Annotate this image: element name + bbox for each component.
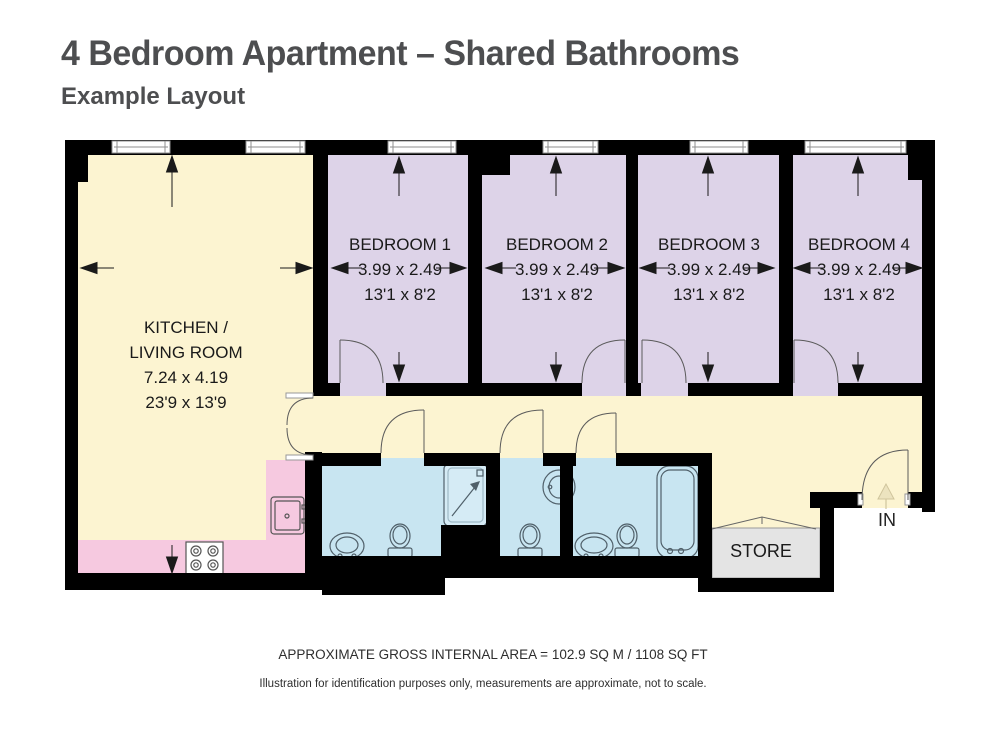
disclaimer-note: Illustration for identification purposes… xyxy=(259,678,706,690)
room-imperial-dims: 13'1 x 8'2 xyxy=(349,282,451,307)
room-metric-dims: 3.99 x 2.49 xyxy=(658,257,760,282)
gross-internal-area-note: APPROXIMATE GROSS INTERNAL AREA = 102.9 … xyxy=(278,647,707,662)
bedroom-4-label: BEDROOM 4 3.99 x 2.49 13'1 x 8'2 xyxy=(808,232,910,307)
room-name: KITCHEN / xyxy=(129,315,242,340)
window xyxy=(388,141,456,153)
room-name: BEDROOM 2 xyxy=(506,232,608,257)
room-metric-dims: 7.24 x 4.19 xyxy=(129,365,242,390)
room-imperial-dims: 13'1 x 8'2 xyxy=(808,282,910,307)
room-name: BEDROOM 1 xyxy=(349,232,451,257)
window xyxy=(543,141,598,153)
window xyxy=(246,141,305,153)
bathrooms-floor xyxy=(308,458,705,558)
room-imperial-dims: 13'1 x 8'2 xyxy=(658,282,760,307)
window xyxy=(805,141,906,153)
window xyxy=(112,141,170,153)
room-imperial-dims: 13'1 x 8'2 xyxy=(506,282,608,307)
kitchen-living-room-label: KITCHEN / LIVING ROOM 7.24 x 4.19 23'9 x… xyxy=(129,315,242,415)
room-metric-dims: 3.99 x 2.49 xyxy=(808,257,910,282)
shower-icon xyxy=(444,464,487,526)
room-name: BEDROOM 3 xyxy=(658,232,760,257)
bedroom-3-label: BEDROOM 3 3.99 x 2.49 13'1 x 8'2 xyxy=(658,232,760,307)
stove-icon xyxy=(186,542,223,574)
room-metric-dims: 3.99 x 2.49 xyxy=(349,257,451,282)
bedroom-1-label: BEDROOM 1 3.99 x 2.49 13'1 x 8'2 xyxy=(349,232,451,307)
window xyxy=(690,141,748,153)
entrance-in-label: IN xyxy=(878,510,896,531)
bedroom-2-label: BEDROOM 2 3.99 x 2.49 13'1 x 8'2 xyxy=(506,232,608,307)
store-label: STORE xyxy=(730,541,792,562)
room-imperial-dims: 23'9 x 13'9 xyxy=(129,390,242,415)
room-name: LIVING ROOM xyxy=(129,340,242,365)
room-name: BEDROOM 4 xyxy=(808,232,910,257)
room-metric-dims: 3.99 x 2.49 xyxy=(506,257,608,282)
